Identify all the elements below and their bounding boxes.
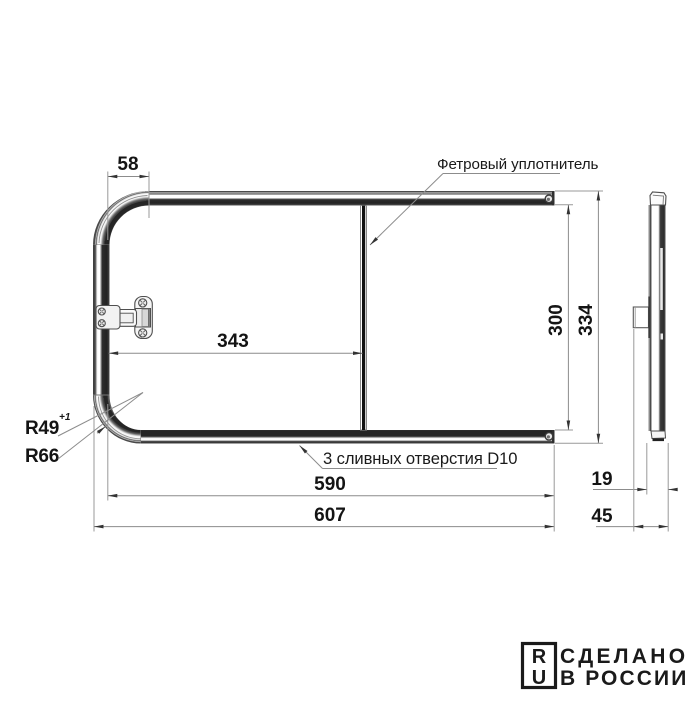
svg-text:R66: R66 bbox=[25, 446, 59, 467]
svg-text:+1: +1 bbox=[59, 412, 71, 423]
svg-text:Фетровый уплотнитель: Фетровый уплотнитель bbox=[437, 156, 599, 173]
svg-text:В РОССИИ: В РОССИИ bbox=[560, 667, 688, 690]
svg-text:300: 300 bbox=[546, 304, 567, 336]
svg-text:58: 58 bbox=[117, 154, 138, 175]
svg-text:СДЕЛАНО: СДЕЛАНО bbox=[560, 645, 688, 668]
svg-text:343: 343 bbox=[217, 331, 249, 352]
svg-text:334: 334 bbox=[576, 304, 597, 336]
svg-text:3 сливных отверстия D10: 3 сливных отверстия D10 bbox=[323, 449, 517, 468]
svg-text:U: U bbox=[532, 667, 546, 689]
svg-text:607: 607 bbox=[314, 505, 346, 526]
svg-text:590: 590 bbox=[314, 474, 346, 495]
svg-text:R: R bbox=[532, 646, 547, 668]
svg-text:45: 45 bbox=[591, 506, 613, 527]
svg-text:R49: R49 bbox=[25, 418, 59, 439]
svg-text:19: 19 bbox=[591, 469, 612, 490]
